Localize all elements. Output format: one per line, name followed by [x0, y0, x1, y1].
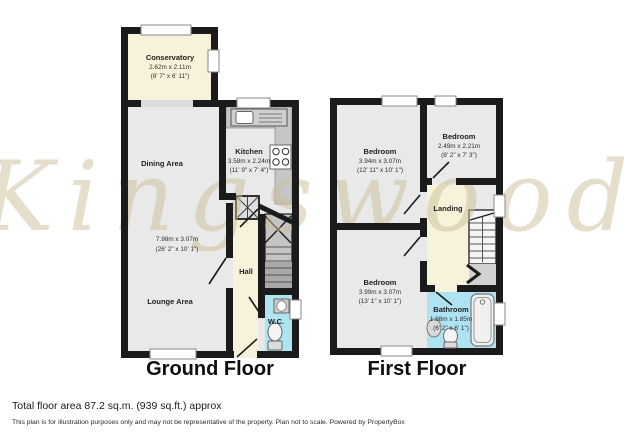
- bedroom-front-dim-metric: 3.94m x 3.07m: [359, 158, 401, 165]
- wc-label: W.C.: [268, 317, 284, 326]
- bedroom-rear-dim-metric: 3.99m x 3.07m: [359, 289, 401, 296]
- conservatory-window: [141, 25, 191, 35]
- floorplan-image: Kingswood: [0, 0, 624, 437]
- total-floor-area-text: Total floor area 87.2 sq.m. (939 sq.ft.)…: [12, 400, 222, 412]
- bathroom-window: [494, 303, 505, 325]
- ground-floor-title: Ground Floor: [146, 358, 274, 380]
- kitchen-dim-metric: 3.58m x 2.24m: [228, 158, 270, 165]
- bathroom-label: Bathroom: [433, 305, 469, 314]
- bedroom-small-label: Bedroom: [443, 132, 476, 141]
- landing-window: [494, 195, 505, 217]
- bedroom-front-window: [382, 96, 417, 106]
- bedroom-front-label: Bedroom: [364, 147, 397, 156]
- wc-sink-icon: [274, 299, 289, 313]
- conservatory-opening: [141, 100, 193, 107]
- kitchen-sink-icon: [231, 109, 287, 126]
- disclaimer-text: This plan is for illustration purposes o…: [12, 419, 405, 426]
- kitchen-label: Kitchen: [235, 147, 263, 156]
- bedroom-rear-dim-imperial: (13' 1" x 10' 1"): [359, 298, 402, 305]
- conservatory-side-window: [208, 50, 219, 72]
- lounge-dining-dim-metric: 7.98m x 3.07m: [156, 236, 198, 243]
- landing-label: Landing: [433, 204, 463, 213]
- bedroom-small-window: [435, 96, 456, 106]
- bedroom-rear-window: [381, 346, 412, 356]
- floorplan-svg: Kingswood: [0, 0, 624, 395]
- lounge-dining-dim-imperial: (26' 2" x 10' 1"): [156, 246, 199, 253]
- bedroom-small-dim-imperial: (8' 2" x 7' 3"): [441, 152, 477, 159]
- wc-window: [290, 300, 301, 319]
- lounge-area-label: Lounge Area: [147, 297, 193, 306]
- wc-toilet-icon: [268, 323, 282, 350]
- hall-label: Hall: [239, 267, 253, 276]
- kitchen-window: [237, 98, 270, 108]
- conservatory-dim-imperial: (8' 7" x 6' 11"): [151, 73, 190, 80]
- bathroom-dim-metric: 1.88m x 1.85m: [430, 316, 472, 323]
- bedroom-front-dim-imperial: (12' 11" x 10' 1"): [357, 167, 403, 174]
- first-floor-title: First Floor: [368, 358, 467, 380]
- bathtub-icon: [471, 294, 494, 346]
- bedroom-small-dim-metric: 2.49m x 2.21m: [438, 143, 480, 150]
- dining-area-label: Dining Area: [141, 159, 184, 168]
- kitchen-dim-imperial: (11' 9" x 7' 4"): [230, 167, 269, 174]
- hob-icon: [270, 145, 291, 169]
- conservatory-label: Conservatory: [146, 53, 195, 62]
- bathroom-dim-imperial: (6' 2" x 6' 1"): [433, 325, 469, 332]
- bedroom-rear-label: Bedroom: [364, 278, 397, 287]
- watermark-text: Kingswood: [0, 141, 624, 253]
- conservatory-dim-metric: 2.62m x 2.11m: [149, 64, 191, 71]
